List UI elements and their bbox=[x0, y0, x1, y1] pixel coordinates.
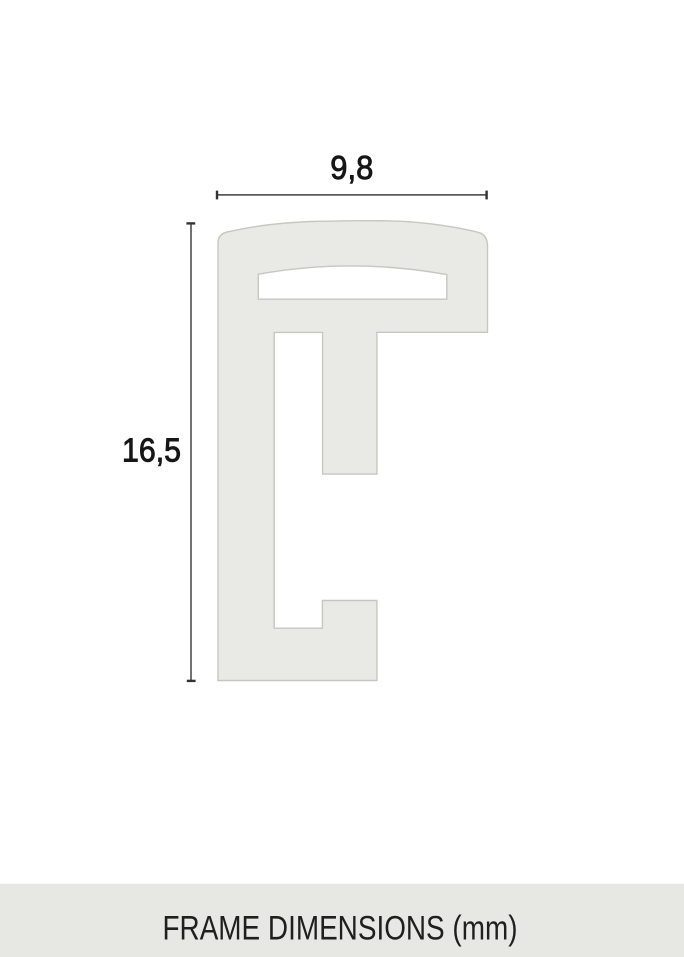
svg-text:9,8: 9,8 bbox=[330, 149, 373, 186]
svg-text:16,5: 16,5 bbox=[122, 431, 181, 468]
svg-text:FRAME DIMENSIONS (mm): FRAME DIMENSIONS (mm) bbox=[163, 909, 518, 947]
